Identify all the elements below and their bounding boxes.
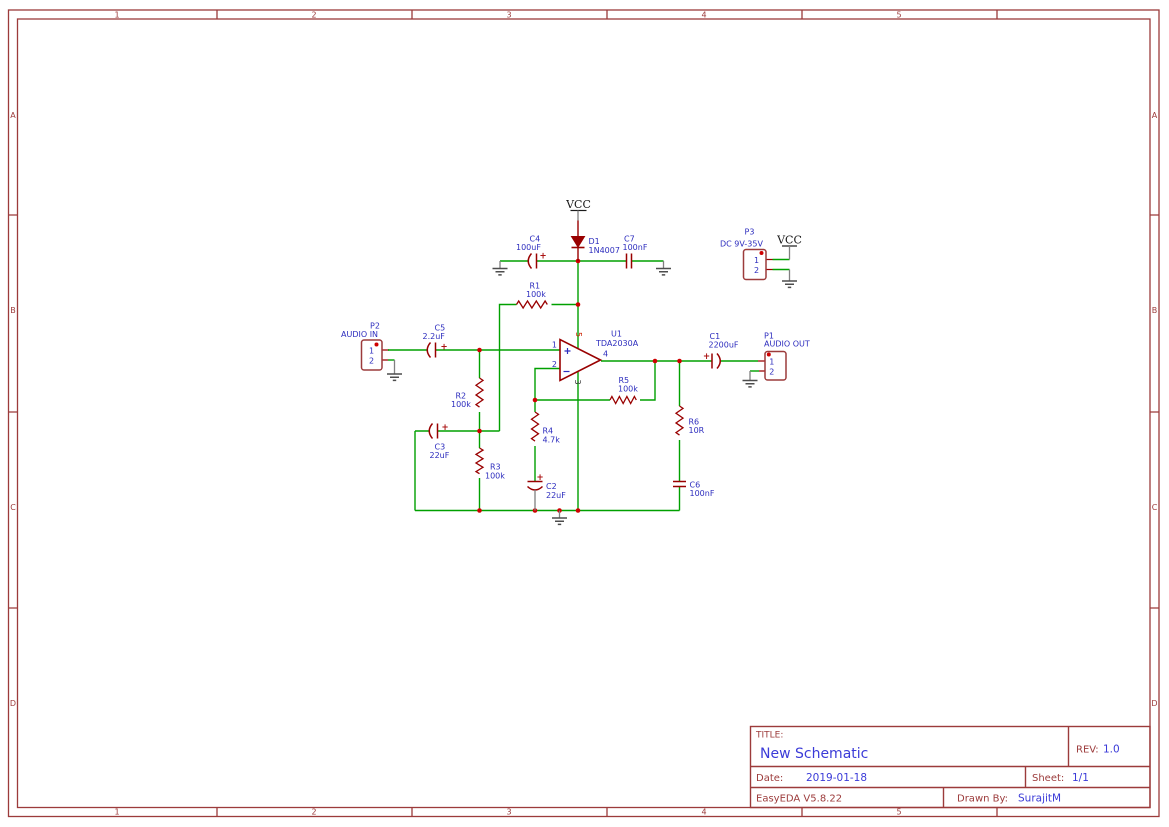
resistor-body[interactable] [610,397,636,404]
frame-outer-border [9,10,1160,817]
connector-pin-stubs [766,260,773,270]
junction-dot [477,348,482,353]
cap-curved-plate [528,254,531,269]
capacitor-C4[interactable] [528,254,536,269]
sheet-frame [9,10,1160,817]
connector-P3[interactable]: 1 2 P3 DC 9V-35V [720,228,773,280]
connector-pin2-number: 2 [769,368,774,377]
pin1-marker-dot [760,251,764,255]
frame-col-label: 1 [114,808,119,817]
frame-row-label: D [10,699,16,708]
vcc-flag-main[interactable]: VCC [565,198,591,221]
resistor-R1[interactable] [517,301,548,308]
resistor-body[interactable] [532,412,539,441]
frame-inner-border [18,19,1151,808]
ground-symbol[interactable] [387,360,402,380]
frame-row-ticks [9,215,1160,608]
wire-r1-left[interactable] [500,305,517,432]
frame-row-label: D [1151,699,1157,708]
frame-col-label: 3 [506,11,511,20]
capacitor-C2[interactable] [528,482,543,511]
value-C5[interactable]: 2.2uF [423,332,446,341]
opamp-pin4-number: 4 [603,350,608,359]
frame-col-label: 1 [114,11,119,20]
opamp-pin2-number: 2 [552,360,557,369]
ground-symbols[interactable] [387,261,797,524]
resistor-body[interactable] [676,406,683,435]
refdes-U1[interactable]: U1 [611,330,622,339]
vcc-flag-label: VCC [776,234,802,247]
value-P3[interactable]: DC 9V-35V [720,240,763,249]
opamp-triangle[interactable] [560,340,601,381]
plus-mark-C1: + [703,352,710,362]
value-R3[interactable]: 100k [485,472,505,481]
value-P2[interactable]: AUDIO IN [341,330,378,339]
ground-symbol[interactable] [552,511,567,525]
frame-row-label: C [1152,503,1158,512]
frame-col-label: 3 [506,808,511,817]
value-R4[interactable]: 4.7k [543,436,561,445]
value-R6[interactable]: 10R [689,426,705,435]
ground-symbol[interactable] [743,371,758,387]
opamp-pin1-number: 1 [552,341,557,350]
value-R1[interactable]: 100k [526,290,546,299]
capacitor-C5[interactable] [427,343,435,358]
connector-pin1-number: 1 [769,358,774,367]
capacitor-C3[interactable] [429,424,437,439]
value-R2[interactable]: 100k [451,400,471,409]
junction-dot [576,302,581,307]
schematic-canvas[interactable]: 1 2 3 4 5 1 2 3 4 5 A B C D A B C D TITL… [0,0,1169,827]
resistor-R4[interactable] [532,412,539,441]
resistor-R5[interactable] [610,397,636,404]
value-C3[interactable]: 22uF [430,451,450,460]
refdes-R4[interactable]: R4 [543,427,554,436]
junction-dot [677,359,682,364]
schematic-title[interactable]: New Schematic [760,746,868,762]
frame-col-label: 5 [896,808,901,817]
title-label: TITLE: [755,731,783,741]
capacitor-C7[interactable] [627,254,632,269]
value-C6[interactable]: 100nF [690,489,715,498]
cap-plates [673,482,686,487]
pin1-marker-dot [767,353,771,357]
junction-dot [533,398,538,403]
connector-pin1-number: 1 [754,256,759,265]
frame-col-label: 4 [701,11,706,20]
plus-mark-C3: + [441,423,448,433]
resistor-R2[interactable] [476,378,483,407]
diode-triangle [572,237,585,248]
refdes-R3[interactable]: R3 [490,463,501,472]
junction-dot [653,359,658,364]
resistor-R3[interactable] [476,448,483,474]
connector-pin2-number: 2 [369,357,374,366]
value-U1[interactable]: TDA2030A [595,339,639,348]
resistor-body[interactable] [476,448,483,474]
frame-row-label: C [10,503,16,512]
frame-col-label: 4 [701,808,706,817]
connector-P2[interactable]: 1 2 P2 AUDIO IN [341,322,388,371]
capacitor-C6[interactable] [673,482,686,487]
title-block: TITLE: New Schematic REV: 1.0 Date: 2019… [751,727,1151,808]
frame-row-label: A [10,111,16,120]
resistor-body[interactable] [476,378,483,407]
software-version: EasyEDA V5.8.22 [756,794,842,805]
connector-pin-stubs [382,350,388,360]
wires[interactable] [388,260,790,511]
sheet-label: Sheet: [1032,773,1064,784]
connector-pin2-number: 2 [754,266,759,275]
value-P1[interactable]: AUDIO OUT [764,340,810,349]
value-D1[interactable]: 1N4007 [589,246,620,255]
rev-value[interactable]: 1.0 [1103,744,1120,756]
junction-dot [477,508,482,513]
opamp-pin3-number: 3 [573,379,582,384]
opamp-pin5-number: 5 [574,332,583,337]
value-C4[interactable]: 100uF [516,243,541,252]
date-value[interactable]: 2019-01-18 [806,772,867,784]
vcc-flag-label: VCC [565,198,591,211]
diode-D1[interactable]: D1 1N4007 [572,221,620,262]
capacitor-C1[interactable] [712,354,720,369]
cap-plates [627,254,632,269]
resistor-R6[interactable] [676,406,683,435]
frame-col-label: 2 [311,11,316,20]
junction-dot [576,508,581,513]
connector-pin-stubs [758,361,765,371]
value-R5[interactable]: 100k [618,385,638,394]
plus-mark-C2: + [536,473,543,483]
refdes-C2[interactable]: C2 [546,482,557,491]
connector-P1[interactable]: 1 2 P1 AUDIO OUT [758,332,810,381]
value-C7[interactable]: 100nF [623,243,648,252]
refdes-P3[interactable]: P3 [745,228,755,237]
rev-label: REV: [1076,745,1099,756]
plus-mark-C5: + [440,343,447,353]
frame-row-label: A [1152,111,1158,120]
junction-dots [477,259,682,513]
frame-col-label: 5 [896,11,901,20]
pin1-marker-dot [375,343,379,347]
ground-symbol[interactable] [656,261,671,275]
date-label: Date: [756,773,783,784]
vcc-flag-p3[interactable]: VCC [776,234,802,260]
frame-column-ticks [217,10,997,817]
frame-column-labels: 1 2 3 4 5 1 2 3 4 5 [114,11,901,817]
frame-row-label: B [1152,306,1158,315]
drawn-by-value[interactable]: SurajitM [1018,793,1061,805]
ground-symbol[interactable] [493,261,508,275]
ground-symbol[interactable] [782,270,797,288]
junction-dot [477,429,482,434]
sheet-value[interactable]: 1/1 [1072,772,1089,784]
frame-row-label: B [10,306,16,315]
resistor-body[interactable] [517,301,548,308]
cap-curved-plate [427,343,430,358]
cap-curved-plate [429,424,432,439]
frame-col-label: 2 [311,808,316,817]
value-C2[interactable]: 22uF [546,491,566,500]
drawn-by-label: Drawn By: [957,794,1008,805]
cap-curved-plate [717,354,720,369]
resistors [476,301,683,474]
connector-pin1-number: 1 [369,347,374,356]
value-C1[interactable]: 2200uF [709,341,739,350]
cap-curved-plate [528,487,543,491]
refdes-D1[interactable]: D1 [589,237,600,246]
plus-mark-C4: + [539,252,546,262]
